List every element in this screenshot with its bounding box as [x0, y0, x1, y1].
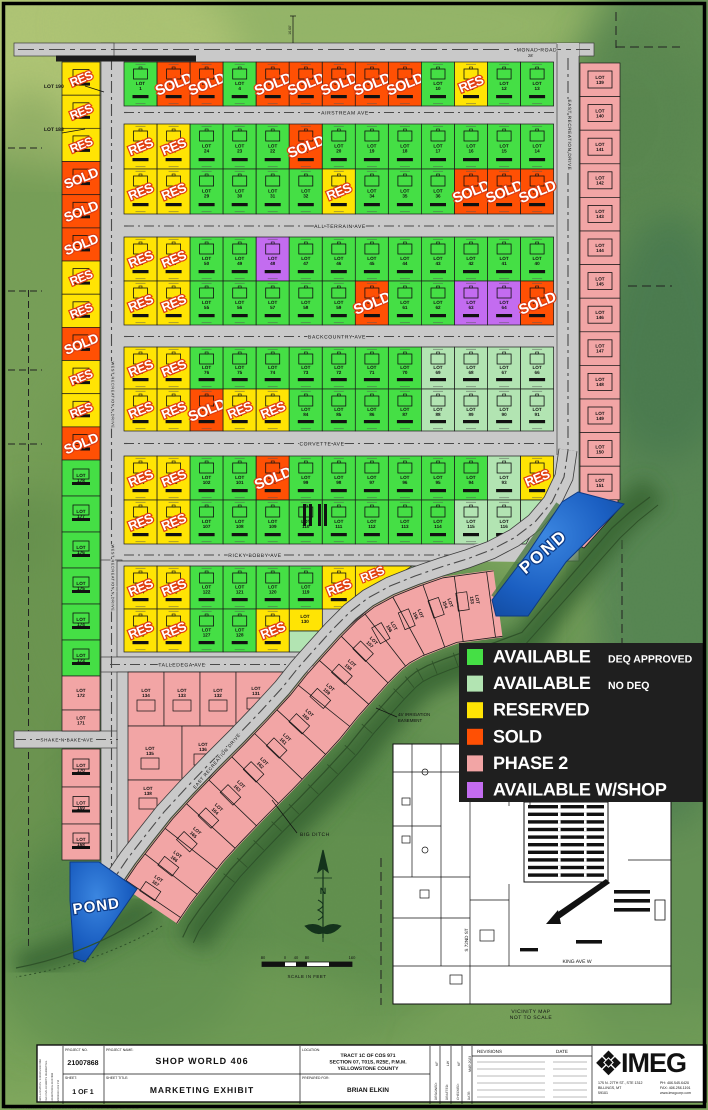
svg-text:47: 47 [303, 261, 309, 266]
svg-text:94: 94 [468, 480, 474, 485]
svg-text:175 N. 27TH ST., STE 1312: 175 N. 27TH ST., STE 1312 [598, 1081, 643, 1085]
svg-text:149: 149 [596, 416, 604, 421]
svg-text:BILLINGS, MT: BILLINGS, MT [598, 1086, 622, 1090]
svg-text:LOT 188: LOT 188 [44, 127, 64, 133]
svg-text:176: 176 [77, 550, 85, 555]
svg-text:1: 1 [139, 86, 142, 91]
svg-text:SHEET:: SHEET: [65, 1076, 77, 1080]
svg-text:PROJECT NAME:: PROJECT NAME: [106, 1048, 134, 1052]
svg-text:138: 138 [144, 791, 152, 796]
svg-text:113: 113 [401, 524, 409, 529]
svg-text:72: 72 [336, 370, 342, 375]
svg-text:18: 18 [402, 148, 408, 153]
svg-text:EASEMENT: EASEMENT [398, 718, 422, 723]
svg-text:PREPARED FOR:: PREPARED FOR: [302, 1076, 330, 1080]
svg-text:44: 44 [402, 261, 408, 266]
svg-text:DATE: DATE [556, 1049, 568, 1054]
svg-text:168: 168 [77, 842, 85, 847]
svg-text:PHASE 2: PHASE 2 [493, 753, 568, 773]
svg-text:141: 141 [596, 147, 604, 152]
svg-text:NO DEQ: NO DEQ [608, 680, 649, 692]
svg-text:95: 95 [435, 480, 441, 485]
svg-text:142: 142 [596, 181, 604, 186]
svg-text:4/30/2023 4:02 PM: 4/30/2023 4:02 PM [57, 1080, 60, 1102]
svg-text:111: 111 [335, 524, 343, 529]
svg-text:49: 49 [237, 261, 243, 266]
svg-text:93: 93 [502, 480, 508, 485]
svg-text:50: 50 [204, 261, 210, 266]
svg-text:169: 169 [77, 806, 85, 811]
svg-text:145: 145 [596, 281, 604, 286]
svg-text:45: 45 [369, 261, 375, 266]
svg-text:63: 63 [468, 305, 474, 310]
svg-text:59101: 59101 [598, 1091, 608, 1095]
svg-text:177: 177 [77, 514, 85, 519]
svg-text:143: 143 [596, 214, 604, 219]
svg-text:130: 130 [301, 619, 309, 624]
svg-text:BIG DITCH: BIG DITCH [300, 832, 330, 838]
svg-text:PROJECT NO.: PROJECT NO. [65, 1048, 88, 1052]
svg-text:www.imegcorp.com: www.imegcorp.com [660, 1091, 691, 1095]
svg-text:147: 147 [596, 349, 604, 354]
svg-text:86: 86 [369, 412, 375, 417]
svg-text:SHEET TITLE:: SHEET TITLE: [106, 1076, 128, 1080]
svg-text:AVAILABLE: AVAILABLE [493, 673, 591, 693]
svg-text:IMEG: IMEG [621, 1048, 686, 1078]
svg-text:SECTION 07, T01S, R25E, P.M.M.: SECTION 07, T01S, R25E, P.M.M. [329, 1060, 407, 1066]
svg-text:173: 173 [77, 658, 85, 663]
svg-text:69: 69 [435, 370, 441, 375]
svg-text:28': 28' [528, 53, 533, 58]
svg-text:ALL TERRAIN AVE: ALL TERRAIN AVE [314, 224, 366, 230]
svg-text:122: 122 [203, 589, 211, 594]
svg-text:140: 140 [596, 113, 604, 118]
svg-text:30: 30 [237, 193, 243, 198]
svg-text:16: 16 [468, 148, 474, 153]
svg-text:RESERVED: RESERVED [493, 700, 590, 720]
svg-text:102: 102 [203, 480, 211, 485]
svg-text:40: 40 [535, 261, 541, 266]
svg-text:43: 43 [435, 261, 441, 266]
svg-text:57: 57 [270, 305, 276, 310]
svg-text:14: 14 [535, 148, 541, 153]
svg-text:NOT TO SCALE: NOT TO SCALE [510, 1015, 553, 1021]
svg-text:SCALE IN FEET: SCALE IN FEET [288, 974, 327, 979]
svg-text:128: 128 [236, 632, 244, 637]
svg-text:109: 109 [269, 524, 277, 529]
svg-text:FAX: 406.256.1191: FAX: 406.256.1191 [660, 1086, 691, 1090]
svg-text:108: 108 [236, 524, 244, 529]
svg-text:70: 70 [402, 370, 408, 375]
svg-text:4: 4 [238, 86, 241, 91]
svg-text:RICKY BOBBY AVE: RICKY BOBBY AVE [228, 553, 282, 559]
svg-text:DWG LOCATION: S:\2021\21007868: DWG LOCATION: S:\2021\21007868 [39, 1059, 42, 1102]
svg-text:PH: 406.545.6420: PH: 406.545.6420 [660, 1081, 689, 1085]
svg-text:34: 34 [369, 193, 375, 198]
svg-text:171: 171 [77, 721, 85, 726]
svg-text:146: 146 [596, 315, 604, 320]
svg-text:115: 115 [467, 524, 475, 529]
svg-text:66: 66 [535, 370, 541, 375]
svg-text:96: 96 [402, 480, 408, 485]
svg-text:121: 121 [236, 589, 244, 594]
svg-text:80: 80 [305, 955, 310, 960]
svg-text:WEST RECREATION N DRIVE: WEST RECREATION N DRIVE [111, 545, 115, 612]
svg-text:17: 17 [435, 148, 441, 153]
svg-text:13: 13 [535, 86, 541, 91]
svg-text:42: 42 [468, 261, 474, 266]
svg-text:15: 15 [502, 148, 508, 153]
svg-text:35: 35 [402, 193, 408, 198]
svg-text:EAST RECREATION DRIVE: EAST RECREATION DRIVE [567, 100, 572, 171]
svg-text:170: 170 [77, 768, 85, 773]
svg-text:68: 68 [468, 370, 474, 375]
svg-text:172: 172 [77, 693, 85, 698]
svg-text:48: 48 [270, 261, 276, 266]
svg-text:SHOP WORLD 406: SHOP WORLD 406 [155, 1056, 248, 1066]
svg-text:AIRSTREAM AVE: AIRSTREAM AVE [321, 111, 369, 117]
svg-text:178: 178 [77, 478, 85, 483]
svg-text:131: 131 [252, 691, 260, 696]
svg-text:119: 119 [302, 589, 310, 594]
svg-text:MAR 2023: MAR 2023 [468, 1056, 472, 1072]
svg-text:KING AVE W: KING AVE W [562, 959, 591, 965]
svg-text:61: 61 [402, 305, 408, 310]
svg-text:136: 136 [199, 747, 207, 752]
svg-text:AVAILABLE W/SHOP: AVAILABLE W/SHOP [493, 780, 667, 800]
svg-text:12: 12 [502, 86, 508, 91]
svg-text:BRIAN ELKIN: BRIAN ELKIN [347, 1087, 389, 1094]
svg-text:116: 116 [500, 524, 508, 529]
svg-text:90: 90 [502, 412, 508, 417]
svg-text:MONAD ROAD: MONAD ROAD [517, 48, 557, 54]
svg-text:80: 80 [261, 955, 266, 960]
svg-text:EXHIBIT.DWG 21007868: EXHIBIT.DWG 21007868 [51, 1072, 54, 1102]
svg-text:101: 101 [236, 480, 244, 485]
svg-text:84: 84 [303, 412, 309, 417]
svg-text:MARKETING EXHIBIT: MARKETING EXHIBIT [150, 1085, 254, 1095]
svg-text:150: 150 [596, 449, 604, 454]
svg-text:46: 46 [336, 261, 342, 266]
svg-text:41: 41 [502, 261, 508, 266]
svg-text:91: 91 [535, 412, 541, 417]
svg-text:139: 139 [596, 80, 604, 85]
svg-text:1 OF 1: 1 OF 1 [72, 1089, 94, 1096]
svg-text:67: 67 [502, 370, 508, 375]
svg-text:21007868: 21007868 [67, 1060, 98, 1067]
svg-text:135: 135 [146, 751, 154, 756]
svg-text:29: 29 [204, 193, 210, 198]
svg-text:45' IRRIGATION: 45' IRRIGATION [398, 712, 430, 717]
svg-text:75: 75 [237, 370, 243, 375]
svg-text:23: 23 [237, 148, 243, 153]
svg-text:132: 132 [214, 693, 222, 698]
svg-text:DEQ APPROVED: DEQ APPROVED [608, 654, 693, 666]
svg-text:SOLD: SOLD [493, 726, 542, 746]
svg-text:127: 127 [203, 632, 211, 637]
svg-text:SHAKE N BAKE AVE: SHAKE N BAKE AVE [40, 738, 93, 743]
svg-text:10.00': 10.00' [288, 25, 292, 35]
svg-text:N: N [320, 886, 327, 896]
svg-text:97: 97 [369, 480, 375, 485]
svg-text:89: 89 [468, 412, 474, 417]
svg-text:10: 10 [435, 86, 441, 91]
svg-text:WEST RECREATION N DRIVE: WEST RECREATION N DRIVE [111, 362, 115, 429]
svg-text:144: 144 [596, 248, 604, 253]
svg-text:22: 22 [270, 148, 276, 153]
svg-text:87: 87 [402, 412, 408, 417]
svg-text:TALLEDEGA AVE: TALLEDEGA AVE [158, 663, 205, 669]
svg-text:85: 85 [336, 412, 342, 417]
svg-text:112: 112 [368, 524, 376, 529]
svg-text:134: 134 [142, 693, 150, 698]
svg-text:73: 73 [303, 370, 309, 375]
svg-text:62: 62 [435, 305, 441, 310]
svg-text:76: 76 [204, 370, 210, 375]
svg-text:175: 175 [77, 586, 85, 591]
svg-text:20: 20 [336, 148, 342, 153]
svg-text:S 72ND ST: S 72ND ST [464, 928, 469, 951]
svg-text:174: 174 [77, 622, 85, 627]
svg-text:148: 148 [596, 382, 604, 387]
svg-text:24: 24 [204, 148, 210, 153]
svg-text:40: 40 [294, 955, 299, 960]
svg-text:REVISIONS: REVISIONS [477, 1049, 502, 1054]
svg-text:CHECKED:: CHECKED: [456, 1083, 460, 1100]
svg-text:98: 98 [336, 480, 342, 485]
svg-text:56: 56 [237, 305, 243, 310]
svg-text:133: 133 [178, 693, 186, 698]
svg-text:71: 71 [369, 370, 375, 375]
svg-text:DRAFTED:: DRAFTED: [445, 1084, 449, 1100]
svg-text:107: 107 [203, 524, 211, 529]
svg-text:59: 59 [336, 305, 342, 310]
svg-text:CAD CIVIL EXHIBITS MARKETING: CAD CIVIL EXHIBITS MARKETING [45, 1061, 48, 1102]
svg-text:74: 74 [270, 370, 276, 375]
svg-text:LOCATION:: LOCATION: [302, 1048, 320, 1052]
svg-text:88: 88 [435, 412, 441, 417]
svg-text:BACKCOUNTRY AVE: BACKCOUNTRY AVE [308, 335, 366, 341]
svg-text:114: 114 [434, 524, 442, 529]
svg-text:DATE:: DATE: [467, 1091, 471, 1100]
svg-text:31: 31 [270, 193, 276, 198]
svg-text:151: 151 [596, 483, 604, 488]
svg-text:YELLOWSTONE COUNTY: YELLOWSTONE COUNTY [337, 1066, 399, 1072]
svg-text:160: 160 [349, 955, 356, 960]
svg-text:99: 99 [303, 480, 309, 485]
svg-text:58: 58 [303, 305, 309, 310]
svg-text:64: 64 [502, 305, 508, 310]
svg-text:LOT 190: LOT 190 [44, 84, 64, 90]
svg-text:32: 32 [303, 193, 309, 198]
svg-text:55: 55 [204, 305, 210, 310]
svg-text:LW: LW [446, 1060, 450, 1066]
svg-text:DESIGNED:: DESIGNED: [434, 1082, 438, 1100]
svg-text:TRACT 1C OF COS 971: TRACT 1C OF COS 971 [340, 1053, 395, 1059]
svg-text:36: 36 [435, 193, 441, 198]
svg-text:CORVETTE AVE: CORVETTE AVE [299, 442, 344, 448]
svg-text:120: 120 [269, 589, 277, 594]
svg-text:19: 19 [369, 148, 375, 153]
svg-text:AVAILABLE: AVAILABLE [493, 647, 591, 667]
